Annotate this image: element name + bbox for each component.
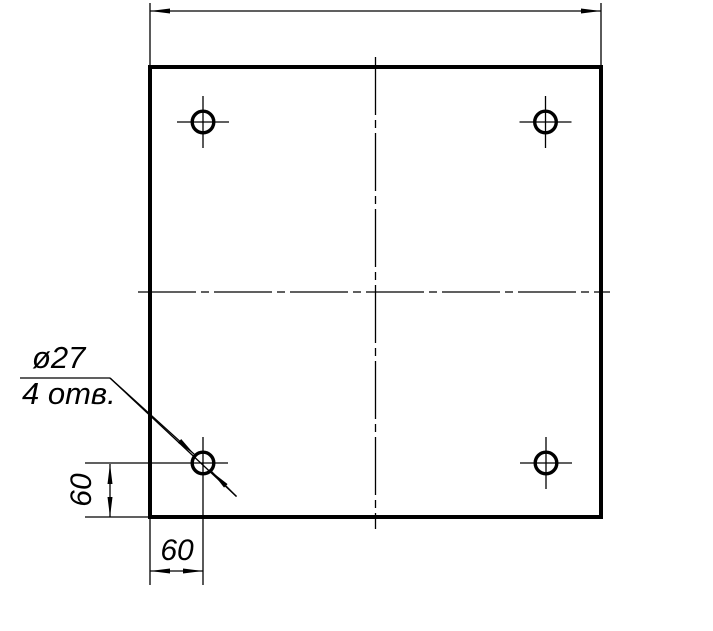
plate-drawing-svg: 60 60 ø27 4 отв. bbox=[0, 0, 713, 631]
hole-top-right bbox=[520, 96, 572, 148]
hole-top-left bbox=[177, 96, 229, 148]
hole-count-label: 4 отв. bbox=[22, 376, 116, 411]
dimension-bottom-60: 60 bbox=[150, 519, 203, 585]
leader-arrow-lower bbox=[212, 472, 237, 497]
dimension-left-60: 60 bbox=[65, 464, 150, 517]
dimension-top-width bbox=[150, 3, 601, 65]
dimension-label-left: 60 bbox=[65, 473, 98, 507]
leader-arrow-upper bbox=[110, 378, 194, 454]
drawing-canvas: 60 60 ø27 4 отв. bbox=[0, 0, 713, 631]
hole-diameter-label: ø27 bbox=[32, 340, 87, 375]
hole-bottom-right bbox=[520, 437, 572, 489]
hole-bottom-left bbox=[85, 437, 228, 585]
dimension-label-bottom: 60 bbox=[160, 534, 194, 567]
